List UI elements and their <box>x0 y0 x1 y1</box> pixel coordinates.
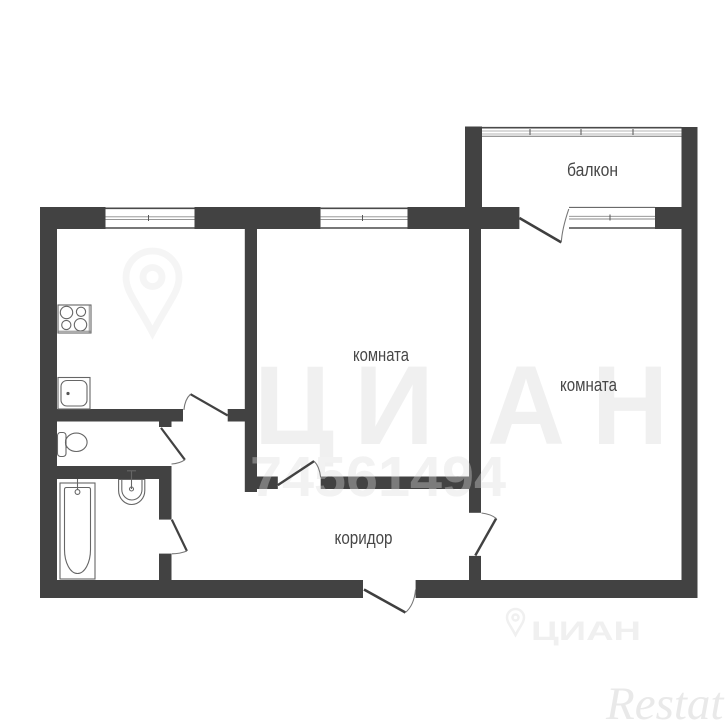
svg-text:ЦИАН: ЦИАН <box>531 616 641 646</box>
svg-text:комната: комната <box>560 375 618 395</box>
svg-text:Н: Н <box>592 343 668 468</box>
svg-text:балкон: балкон <box>567 160 618 180</box>
svg-text:коридор: коридор <box>335 528 393 548</box>
svg-text:Restate: Restate <box>605 678 725 725</box>
svg-text:комната: комната <box>353 345 410 365</box>
